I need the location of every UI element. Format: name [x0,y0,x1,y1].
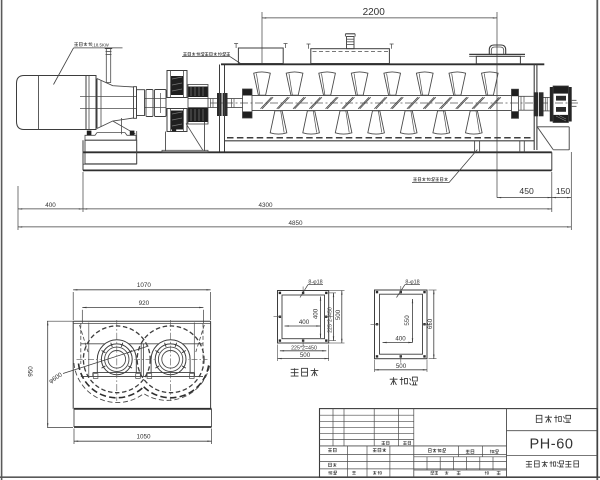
svg-text:400: 400 [299,319,310,326]
svg-text:150: 150 [556,186,571,196]
svg-text:2200: 2200 [363,7,386,18]
svg-text:500: 500 [300,352,311,359]
svg-text:400: 400 [395,335,406,342]
svg-text:500: 500 [335,309,342,320]
svg-text:1050: 1050 [136,433,151,440]
svg-text:4300: 4300 [258,202,273,209]
svg-text:450: 450 [519,186,534,196]
svg-text:920: 920 [139,300,150,307]
svg-text:650: 650 [427,318,434,329]
svg-text:PH-60: PH-60 [529,437,573,453]
svg-text:400: 400 [45,202,56,209]
svg-text:500: 500 [396,363,407,370]
svg-text:,18.5KW: ,18.5KW [92,42,109,47]
svg-text:950: 950 [28,366,35,377]
svg-text:550: 550 [404,315,411,326]
svg-text:4850: 4850 [288,220,303,227]
svg-text:225*2=450: 225*2=450 [291,345,317,351]
svg-text:400: 400 [312,308,319,319]
svg-text:1070: 1070 [137,282,152,289]
svg-text:225*2=450: 225*2=450 [327,307,333,333]
